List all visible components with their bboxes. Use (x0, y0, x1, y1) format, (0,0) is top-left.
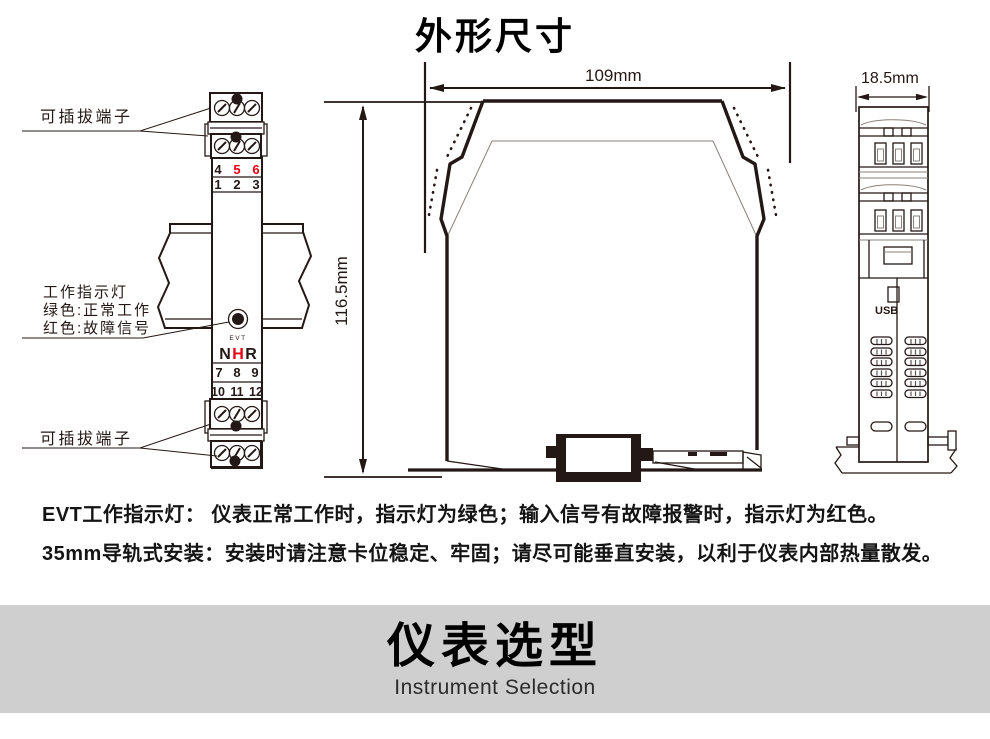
dimension-depth: 18.5mm (856, 70, 929, 112)
side-notch (859, 240, 928, 278)
banner-subtitle: Instrument Selection (0, 676, 990, 700)
evt-indicator-light (229, 310, 248, 329)
section-banner: 仪表选型 Instrument Selection (0, 605, 990, 713)
dimension-depth-label: 18.5mm (861, 70, 919, 87)
callouts: 可插拔端子 工作指示灯 绿色:正常工作 红色:故障信号 可插拔端子 (22, 108, 229, 456)
dimension-height-label: 116.5mm (332, 256, 351, 326)
terminal-release-pin (230, 456, 241, 467)
note-rail-mounting: 35mm导轨式安装：安装时请注意卡位稳定、牢固；请尽可能垂直安装，以利于仪表内部… (42, 537, 942, 566)
page-title: 外形尺寸 (0, 6, 990, 60)
usb-label: USB (875, 305, 898, 317)
terminal-4: 4 (214, 162, 222, 177)
terminal-3: 3 (252, 177, 259, 192)
device-profile (408, 101, 776, 470)
note-evt-indicator: EVT工作指示灯： 仪表正常工作时，指示灯为绿色；输入信号有故障报警时，指示灯为… (42, 498, 888, 527)
terminal-7: 7 (215, 365, 222, 380)
terminal-6: 6 (252, 162, 259, 177)
terminal-5: 5 (233, 162, 240, 177)
side-view: 18.5mm (835, 70, 957, 473)
dimension-width: 109mm (425, 62, 790, 253)
profile-view: 109mm 116.5mm (324, 62, 790, 482)
bottom-terminal-block (205, 399, 267, 467)
terminal-12: 12 (249, 385, 263, 399)
terminal-release-pin (231, 421, 242, 432)
dimension-width-label: 109mm (585, 66, 642, 85)
label-indicator-title: 工作指示灯 (43, 284, 128, 301)
logo-r: R (245, 346, 257, 363)
logo-h: H (232, 346, 244, 363)
front-panel-view: 4 5 6 1 2 3 EVT N H R (22, 93, 311, 468)
bottom-slot (905, 422, 926, 431)
terminal-11: 11 (230, 385, 243, 399)
top-terminal-block (205, 93, 267, 158)
terminal-release-pin (231, 132, 242, 143)
vent-slots (871, 337, 926, 398)
bottom-slot (871, 422, 892, 431)
label-indicator-green: 绿色:正常工作 (43, 302, 151, 319)
terminal-10: 10 (211, 385, 225, 399)
side-lower-section: USB (871, 278, 926, 462)
label-indicator-red: 红色:故障信号 (43, 319, 151, 337)
banner-title: 仪表选型 (0, 605, 990, 671)
page: 4 5 6 1 2 3 EVT N H R (0, 0, 990, 739)
side-top-section (859, 120, 928, 240)
din-rail-side (835, 431, 957, 473)
terminal-1: 1 (214, 177, 221, 192)
nhr-logo: N H R (219, 346, 257, 363)
label-plug-terminal-top: 可插拔端子 (40, 108, 133, 126)
rail-clamp (546, 434, 761, 482)
dimension-drawings: 4 5 6 1 2 3 EVT N H R (0, 0, 990, 500)
terminal-8: 8 (233, 365, 240, 380)
terminal-numbers-top: 4 5 6 1 2 3 (212, 158, 262, 192)
terminal-9: 9 (251, 365, 258, 380)
terminal-2: 2 (233, 177, 240, 192)
label-plug-terminal-bottom: 可插拔端子 (40, 430, 133, 448)
terminal-release-pin (232, 94, 243, 105)
logo-n: N (219, 346, 231, 363)
evt-label: EVT (229, 335, 246, 342)
